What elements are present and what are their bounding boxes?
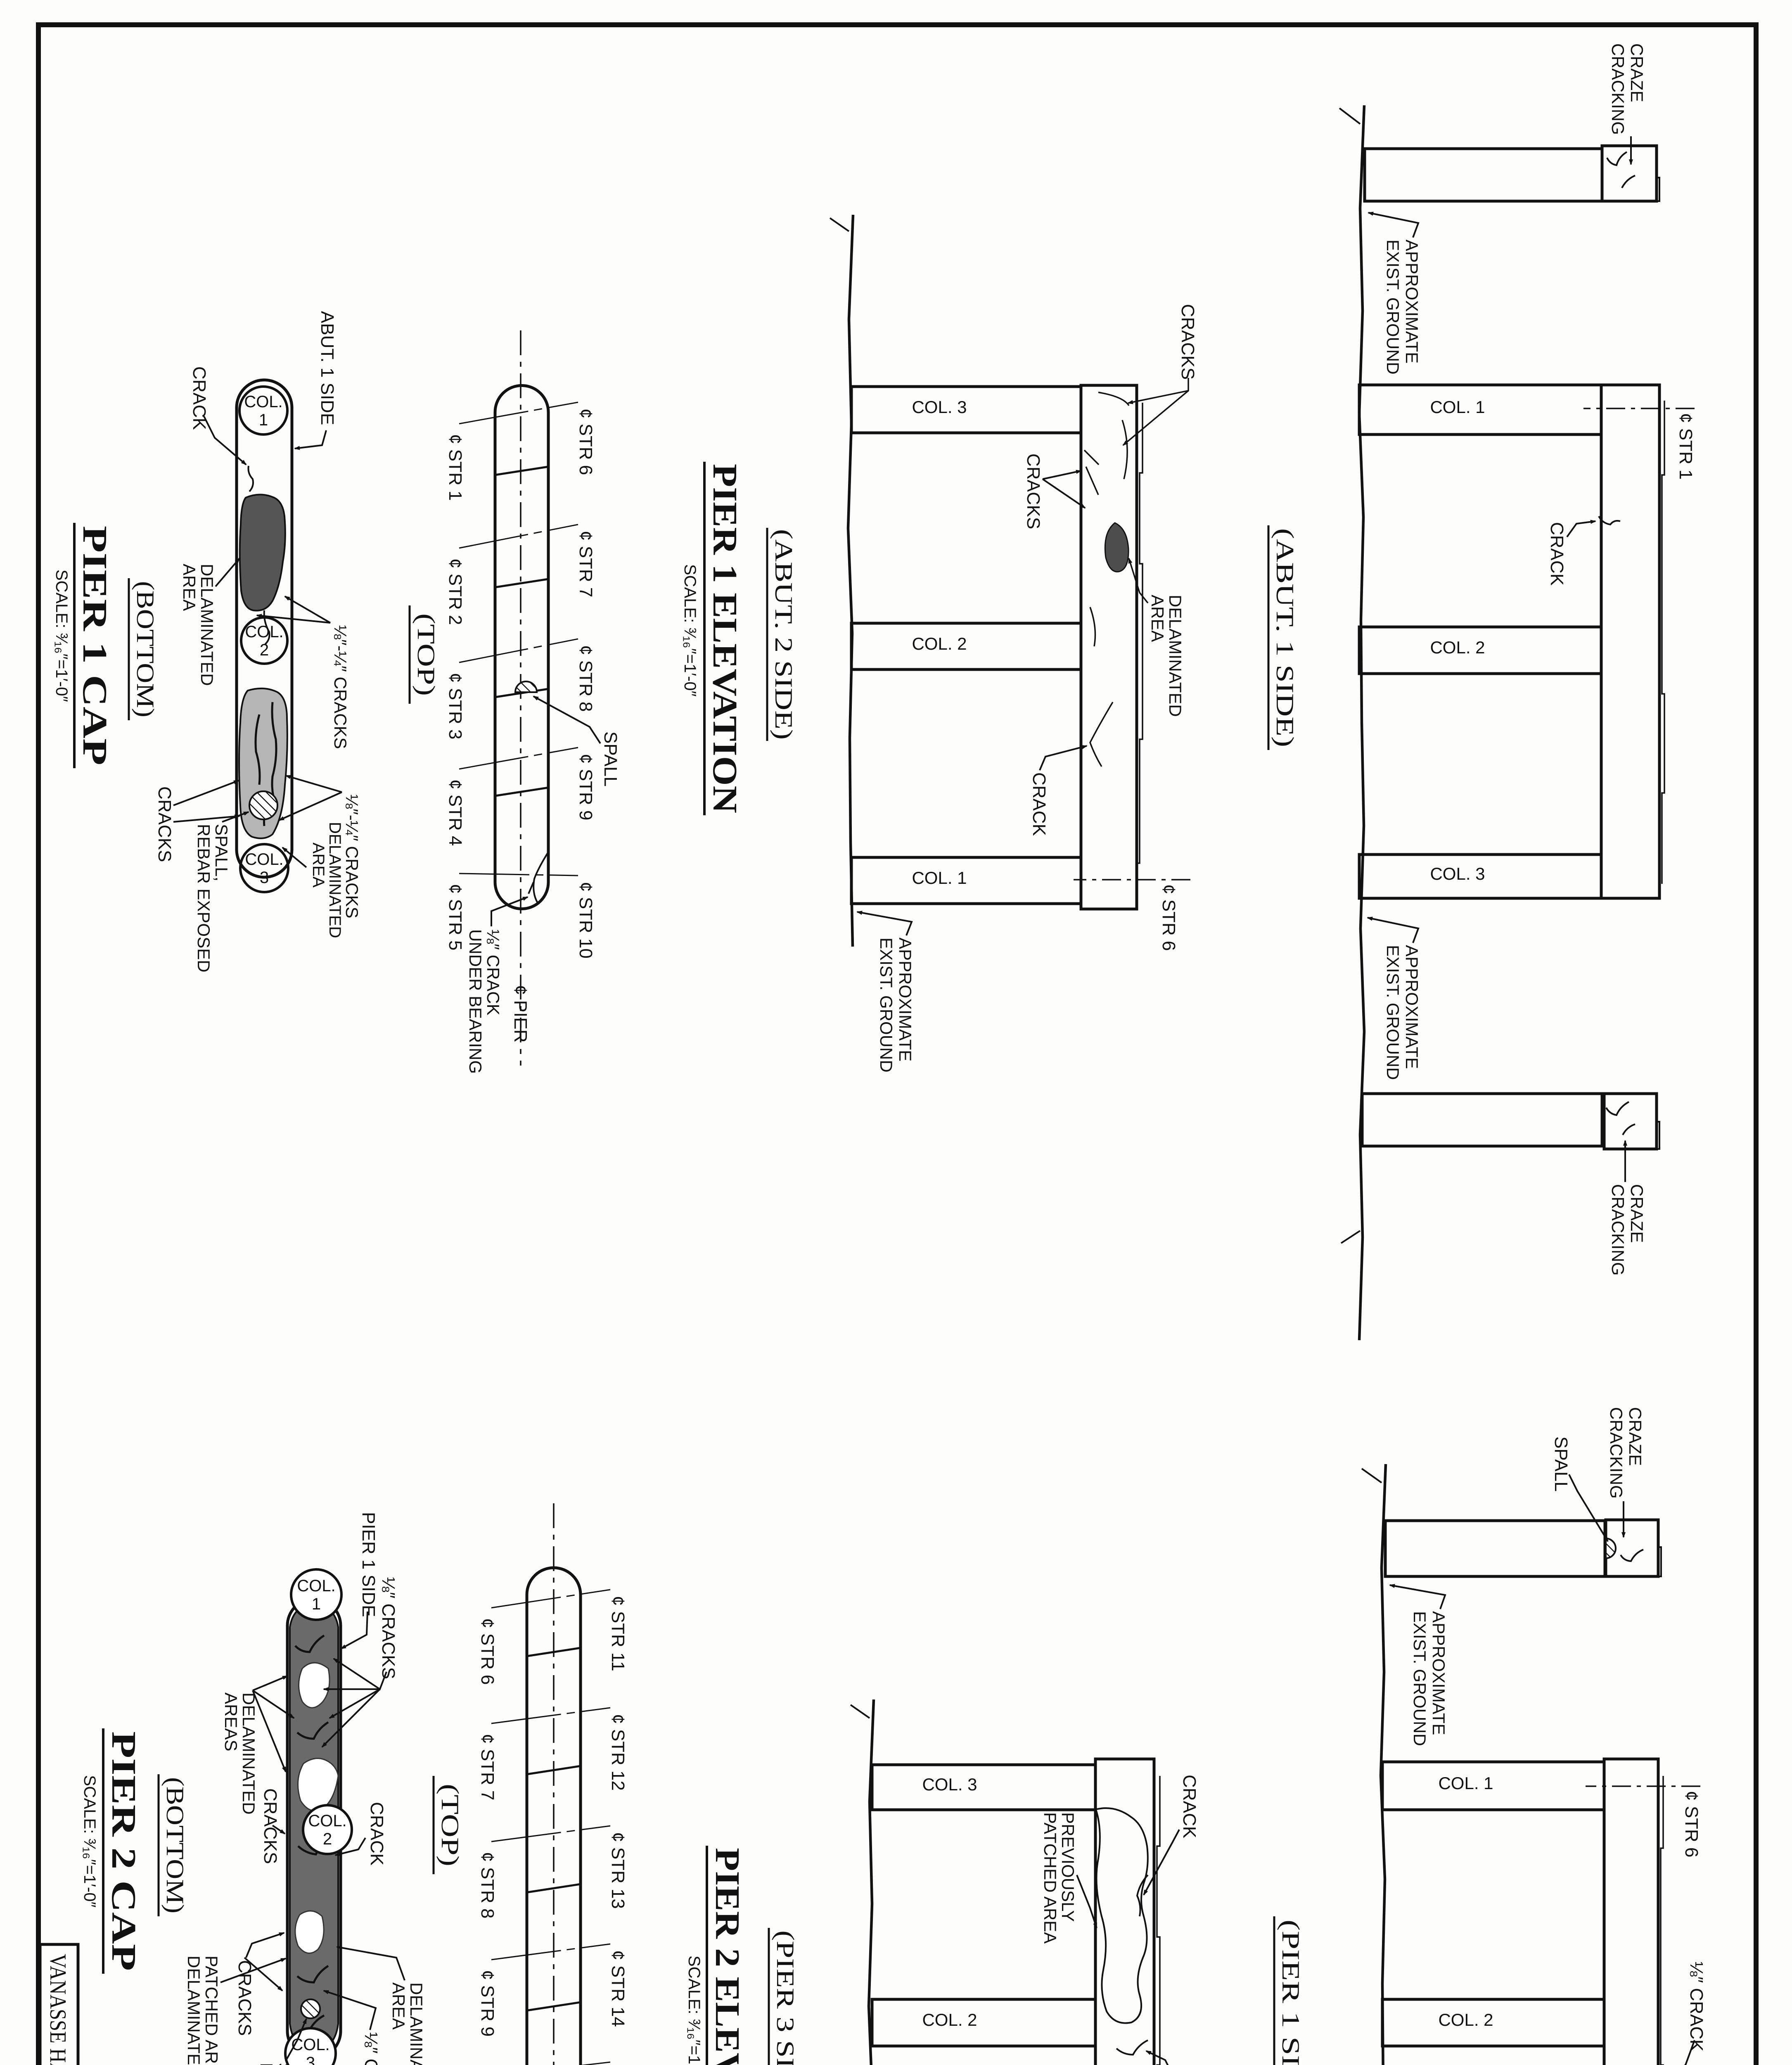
svg-text:2: 2 xyxy=(260,641,269,659)
svg-text:EXIST. GROUND: EXIST. GROUND xyxy=(877,938,896,1073)
svg-text:CRAZE: CRAZE xyxy=(1627,1184,1647,1243)
svg-text:¢ STR 11: ¢ STR 11 xyxy=(608,1596,628,1671)
svg-text:EXIST. GROUND: EXIST. GROUND xyxy=(1410,1611,1429,1746)
svg-text:CRACK: CRACK xyxy=(189,366,209,430)
svg-text:DELAMINATED: DELAMINATED xyxy=(1166,595,1185,717)
svg-text:APPROXIMATE: APPROXIMATE xyxy=(1402,945,1422,1069)
svg-text:COL. 3: COL. 3 xyxy=(1430,864,1485,883)
svg-text:DELAMINATED: DELAMINATED xyxy=(407,1982,426,2065)
svg-text:AREA: AREA xyxy=(389,1982,408,2029)
svg-text:COL. 2: COL. 2 xyxy=(922,2010,977,2029)
svg-text:SPALL,: SPALL, xyxy=(275,2063,294,2065)
svg-text:AREA: AREA xyxy=(1148,595,1167,642)
svg-text:2: 2 xyxy=(323,1830,332,1848)
svg-text:UNDER BEARING: UNDER BEARING xyxy=(466,929,485,1074)
svg-text:COL. 1: COL. 1 xyxy=(912,868,967,888)
svg-text:COL.: COL. xyxy=(244,393,282,411)
svg-text:EXIST. GROUND: EXIST. GROUND xyxy=(1383,945,1403,1080)
svg-text:CRACK: CRACK xyxy=(1029,772,1049,836)
svg-text:¢ STR 8: ¢ STR 8 xyxy=(576,645,596,712)
svg-text:CRAZE: CRAZE xyxy=(1627,43,1647,102)
svg-text:APPROXIMATE: APPROXIMATE xyxy=(1402,240,1422,363)
svg-text:EXIST. GROUND: EXIST. GROUND xyxy=(1383,240,1403,375)
svg-text:DELAMINATED: DELAMINATED xyxy=(239,1692,258,1815)
svg-text:CRACKS: CRACKS xyxy=(154,786,175,862)
svg-text:⅛″-¼″ CRACKS: ⅛″-¼″ CRACKS xyxy=(331,625,350,749)
svg-text:⅛″ CRACK: ⅛″ CRACK xyxy=(361,2032,381,2065)
svg-text:(TOP): (TOP) xyxy=(436,1784,464,1866)
svg-text:(PIER 1 SIDE): (PIER 1 SIDE) xyxy=(1277,1920,1304,2065)
svg-text:AREAS: AREAS xyxy=(221,1692,241,1751)
svg-text:AREA: AREA xyxy=(309,843,327,888)
svg-text:⅛″ CRACKS: ⅛″ CRACKS xyxy=(378,1577,398,1679)
svg-text:¢ STR 6: ¢ STR 6 xyxy=(477,1618,498,1685)
svg-text:⅛″ CRACK: ⅛″ CRACK xyxy=(1686,1961,1707,2052)
svg-text:¢ STR 14: ¢ STR 14 xyxy=(608,1950,628,2027)
svg-text:PATCHED AREA: PATCHED AREA xyxy=(202,1956,221,2065)
svg-text:¢ PIER: ¢ PIER xyxy=(510,985,531,1042)
svg-text:REBAR EXPOSED: REBAR EXPOSED xyxy=(257,2063,276,2065)
svg-text:¢ STR 4: ¢ STR 4 xyxy=(445,779,465,846)
svg-text:CRACKS: CRACKS xyxy=(1023,453,1043,529)
svg-text:¢ STR 1: ¢ STR 1 xyxy=(1676,413,1696,479)
svg-text:SPALL: SPALL xyxy=(600,731,621,787)
svg-text:¢ STR 6: ¢ STR 6 xyxy=(1681,1791,1702,1857)
svg-text:PIER 2 ELEVATION: PIER 2 ELEVATION xyxy=(708,1848,747,2065)
svg-text:PIER 1 CAP: PIER 1 CAP xyxy=(76,526,114,765)
svg-text:(ABUT. 1 SIDE): (ABUT. 1 SIDE) xyxy=(1271,528,1299,747)
svg-text:¢ STR 10: ¢ STR 10 xyxy=(576,882,596,959)
svg-text:¢ STR 9: ¢ STR 9 xyxy=(576,754,596,820)
svg-text:SCALE:: SCALE: xyxy=(52,570,71,628)
svg-text:PREVIOUSLY: PREVIOUSLY xyxy=(1058,1812,1078,1922)
svg-text:CRACKS: CRACKS xyxy=(260,1788,280,1864)
svg-text:PATCHED AREA: PATCHED AREA xyxy=(1041,1812,1060,1944)
svg-text:COL.: COL. xyxy=(297,1577,335,1595)
svg-text:CRACKING: CRACKING xyxy=(1608,1184,1628,1276)
svg-text:AREA: AREA xyxy=(180,564,199,611)
svg-text:SCALE:: SCALE: xyxy=(81,1775,99,1834)
svg-text:SCALE:: SCALE: xyxy=(681,564,699,623)
svg-text:¢ STR 8: ¢ STR 8 xyxy=(477,1852,498,1918)
svg-text:DELAMINATED: DELAMINATED xyxy=(184,1956,204,2065)
svg-text:SPALL: SPALL xyxy=(1551,1436,1571,1492)
svg-text:³⁄₁₆″=1′-0″: ³⁄₁₆″=1′-0″ xyxy=(81,1839,99,1908)
svg-text:¢ STR 5: ¢ STR 5 xyxy=(445,884,465,950)
svg-text:¢ STR 3: ¢ STR 3 xyxy=(445,673,465,739)
svg-text:SCALE:: SCALE: xyxy=(685,1956,703,2014)
svg-text:COL.: COL. xyxy=(245,850,283,869)
svg-text:(PIER 3 SIDE): (PIER 3 SIDE) xyxy=(772,1930,799,2065)
svg-text:COL.: COL. xyxy=(308,1812,346,1830)
svg-text:⅛″ CRACK: ⅛″ CRACK xyxy=(484,929,503,1016)
svg-text:(BOTTOM): (BOTTOM) xyxy=(161,1777,189,1913)
svg-text:⅛″-¼″ CRACKS: ⅛″-¼″ CRACKS xyxy=(342,794,362,918)
svg-text:APPROXIMATE: APPROXIMATE xyxy=(896,938,915,1061)
svg-text:APPROXIMATE: APPROXIMATE xyxy=(1429,1611,1448,1735)
svg-text:DELAMINATED: DELAMINATED xyxy=(326,822,344,938)
svg-text:³⁄₁₆″=1′-0″: ³⁄₁₆″=1′-0″ xyxy=(685,2019,703,2065)
svg-text:³⁄₁₆″=1′-0″: ³⁄₁₆″=1′-0″ xyxy=(52,633,71,702)
svg-text:COL. 3: COL. 3 xyxy=(912,397,967,417)
svg-text:COL. 2: COL. 2 xyxy=(912,634,967,653)
svg-text:PIER 2 CAP: PIER 2 CAP xyxy=(104,1731,143,1971)
svg-text:1: 1 xyxy=(259,411,268,429)
svg-text:CRACKING: CRACKING xyxy=(1607,1407,1626,1499)
svg-text:PIER 1 SIDE: PIER 1 SIDE xyxy=(358,1512,379,1617)
svg-text:COL. 3: COL. 3 xyxy=(922,1775,977,1794)
svg-text:¢ STR 13: ¢ STR 13 xyxy=(608,1832,628,1909)
svg-text:COL. 1: COL. 1 xyxy=(1430,397,1485,417)
svg-text:CRACK: CRACK xyxy=(1547,522,1567,586)
svg-text:(BOTTOM): (BOTTOM) xyxy=(132,581,159,717)
svg-text:REBAR EXPOSED: REBAR EXPOSED xyxy=(194,824,213,972)
svg-text:(TOP): (TOP) xyxy=(412,613,440,696)
svg-text:DELAMINATED: DELAMINATED xyxy=(197,564,217,686)
svg-text:3: 3 xyxy=(260,869,269,887)
svg-text:¢ STR 1: ¢ STR 1 xyxy=(445,434,465,501)
svg-text:COL.: COL. xyxy=(245,623,283,641)
svg-text:VANASSE HANGEN BRUSTLIN, INC.: VANASSE HANGEN BRUSTLIN, INC. xyxy=(45,1954,71,2065)
svg-text:¢ STR 2: ¢ STR 2 xyxy=(445,558,465,625)
svg-text:¢ STR 6: ¢ STR 6 xyxy=(576,408,596,475)
svg-text:CRAZE: CRAZE xyxy=(1626,1407,1645,1466)
svg-text:¢ STR 7: ¢ STR 7 xyxy=(576,531,596,597)
svg-text:¢ STR 9: ¢ STR 9 xyxy=(477,1970,498,2037)
svg-text:³⁄₁₆″=1′-0″: ³⁄₁₆″=1′-0″ xyxy=(681,628,699,697)
svg-text:CRACK: CRACK xyxy=(367,1802,387,1866)
svg-text:¢ STR 7: ¢ STR 7 xyxy=(477,1734,498,1800)
svg-text:ABUT. 1 SIDE: ABUT. 1 SIDE xyxy=(317,311,337,425)
svg-text:CRACKS: CRACKS xyxy=(1178,304,1198,380)
svg-text:PIER 1 ELEVATION: PIER 1 ELEVATION xyxy=(706,464,744,813)
svg-text:¢ STR 6: ¢ STR 6 xyxy=(1159,884,1179,951)
svg-text:COL. 2: COL. 2 xyxy=(1430,638,1485,657)
svg-text:CRACK: CRACK xyxy=(1179,1775,1199,1838)
svg-text:COL. 2: COL. 2 xyxy=(1438,2010,1493,2029)
svg-text:3: 3 xyxy=(306,2054,315,2065)
svg-text:COL.: COL. xyxy=(291,2036,329,2054)
svg-text:SPALL,: SPALL, xyxy=(212,824,231,881)
svg-text:(ABUT. 2 SIDE): (ABUT. 2 SIDE) xyxy=(770,529,797,740)
svg-text:COL. 1: COL. 1 xyxy=(1438,1773,1493,1793)
svg-text:¢ STR 12: ¢ STR 12 xyxy=(608,1714,628,1791)
svg-text:1: 1 xyxy=(312,1595,321,1613)
svg-text:CRACKING: CRACKING xyxy=(1608,43,1628,135)
